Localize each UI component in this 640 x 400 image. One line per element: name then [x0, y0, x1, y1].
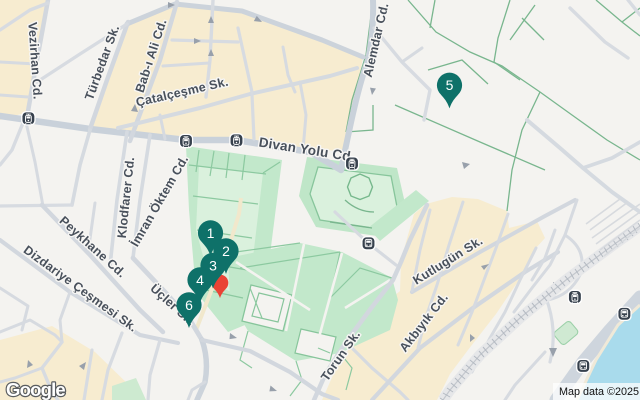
svg-text:Map data ©2025: Map data ©2025 [559, 386, 639, 398]
svg-text:Google: Google [6, 379, 65, 400]
svg-text:1: 1 [207, 225, 215, 241]
svg-text:4: 4 [196, 272, 204, 288]
svg-text:2: 2 [222, 243, 230, 259]
svg-text:3: 3 [209, 257, 217, 273]
svg-text:6: 6 [185, 297, 193, 313]
svg-text:5: 5 [446, 77, 454, 93]
